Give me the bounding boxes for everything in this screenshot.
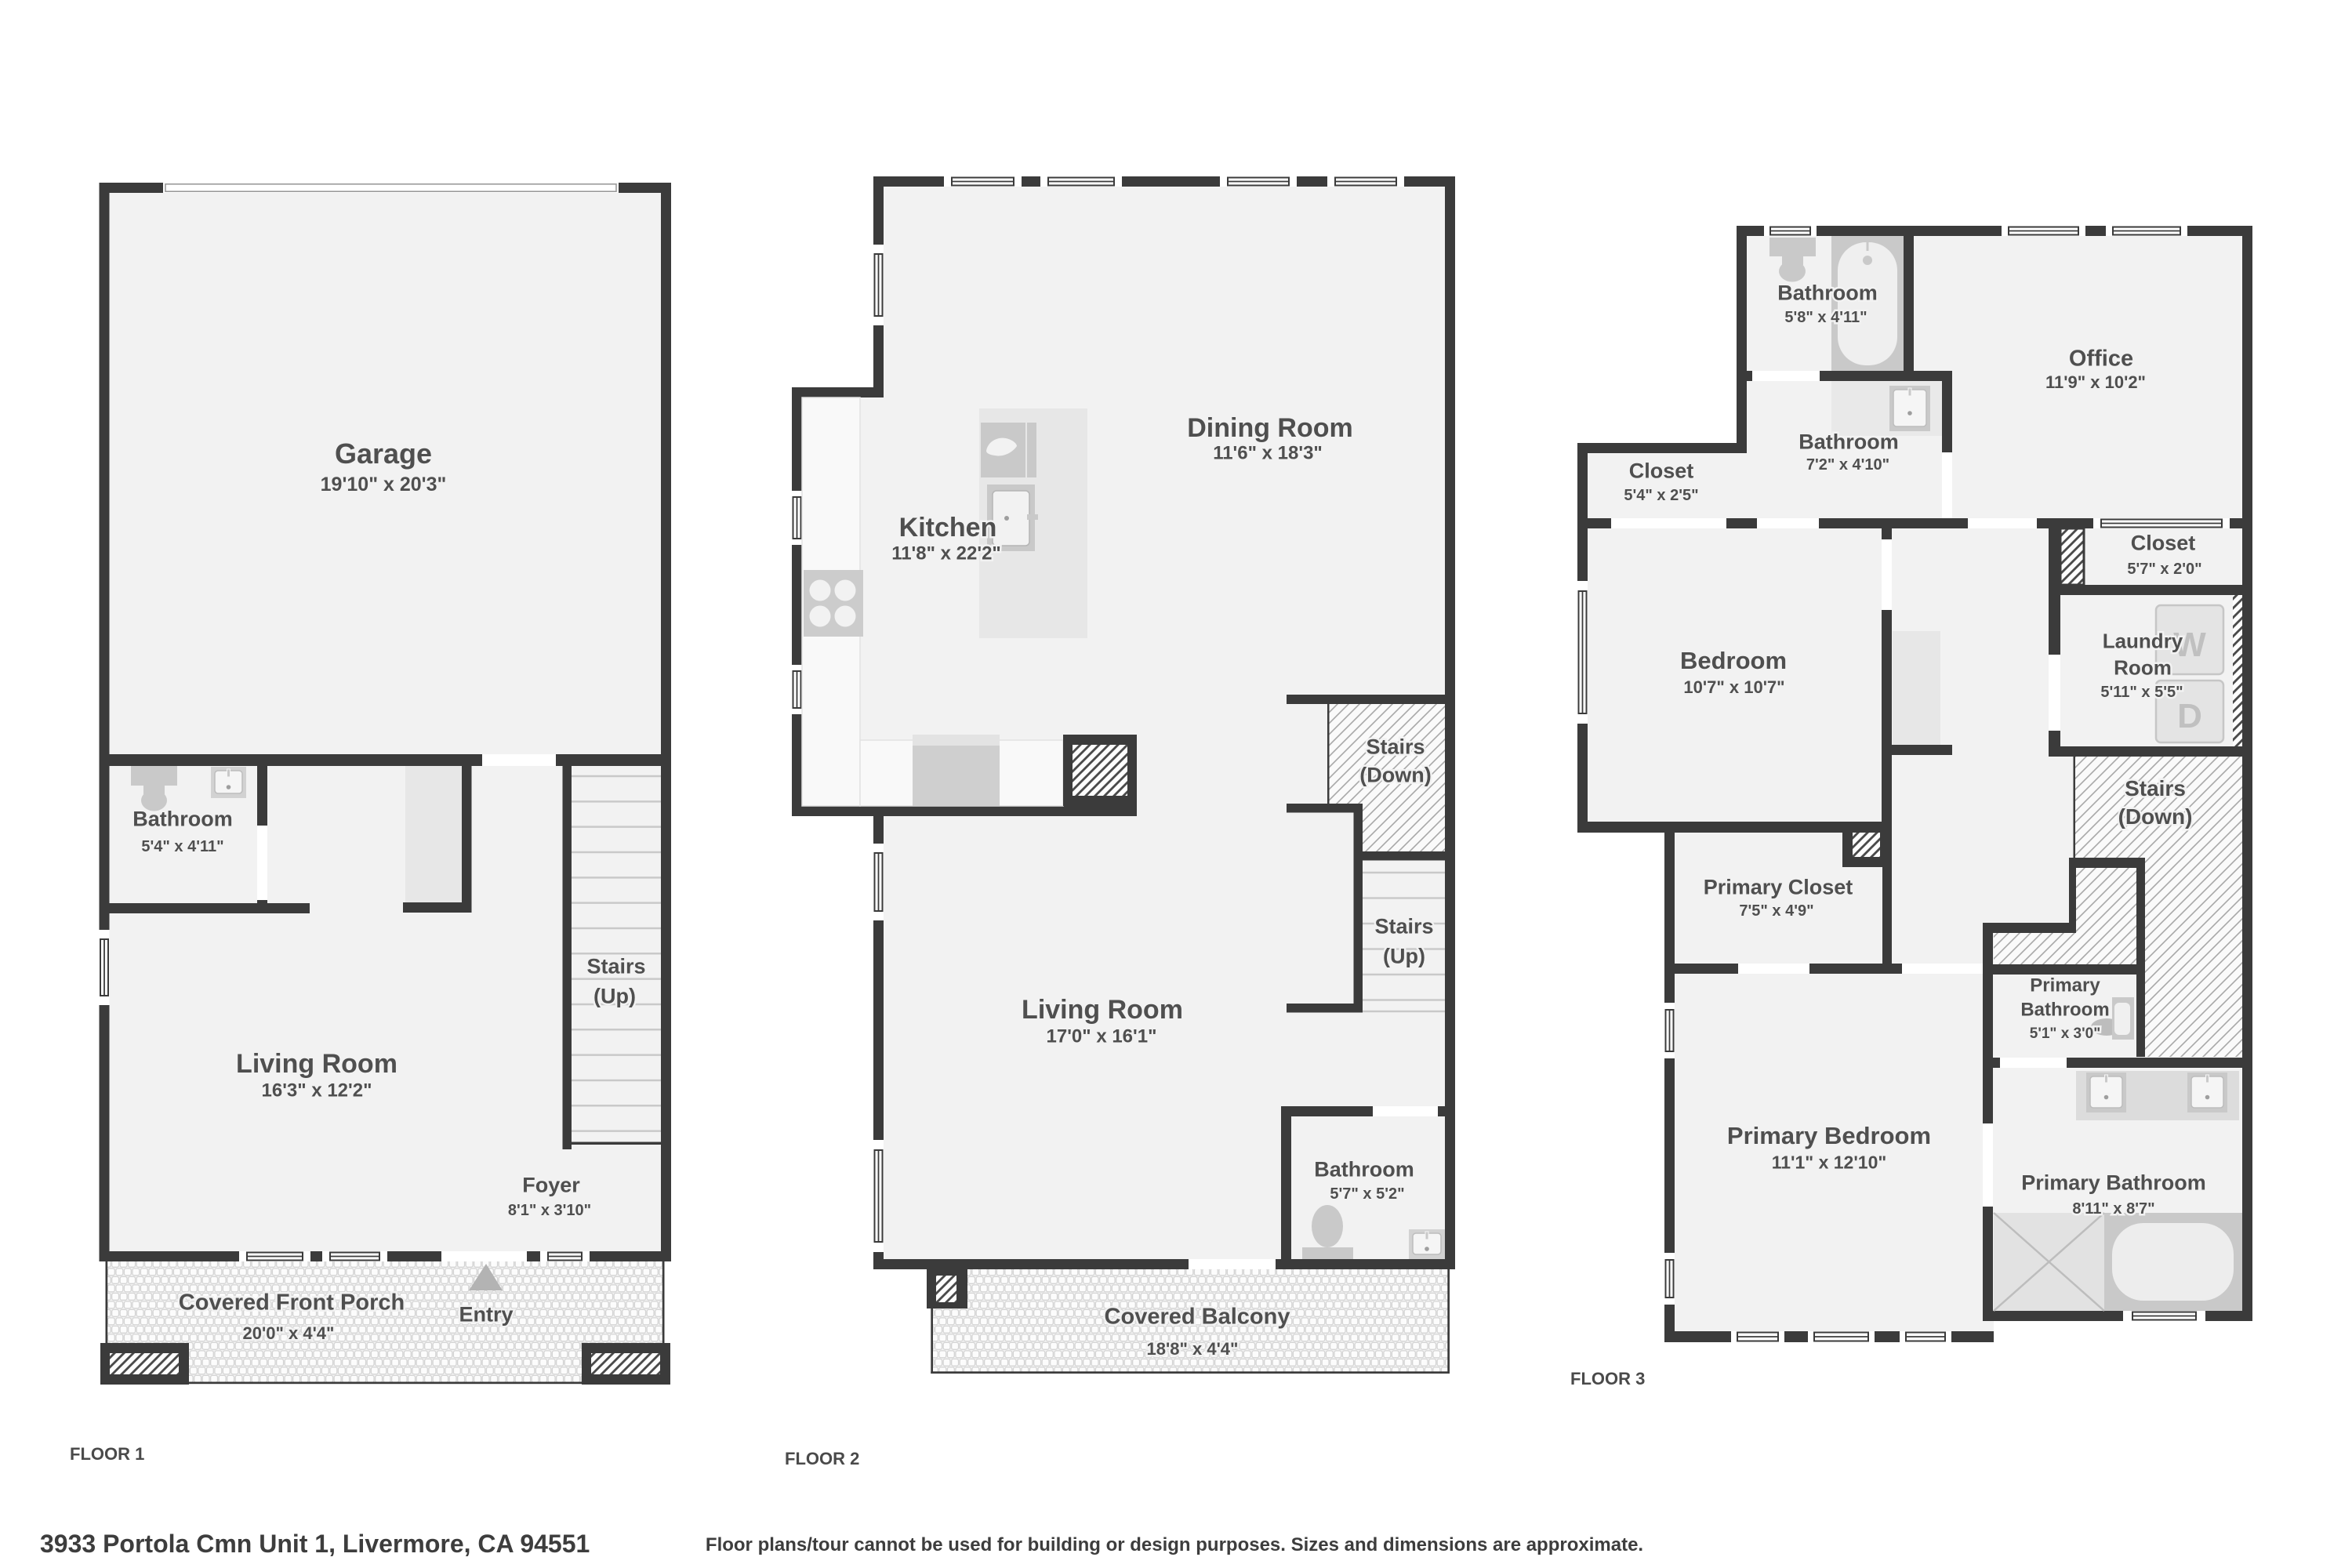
svg-text:5'11" x 5'5": 5'11" x 5'5" xyxy=(2100,684,2183,701)
svg-text:Bathroom: Bathroom xyxy=(2020,1000,2109,1021)
svg-text:5'7" x 2'0": 5'7" x 2'0" xyxy=(2127,561,2201,578)
svg-text:(Down): (Down) xyxy=(2118,804,2193,829)
svg-text:Laundry: Laundry xyxy=(2103,629,2183,652)
svg-text:Closet: Closet xyxy=(1629,459,1694,483)
svg-text:Covered Front Porch: Covered Front Porch xyxy=(179,1290,405,1315)
svg-text:7'5" x 4'9": 7'5" x 4'9" xyxy=(1739,902,1813,920)
svg-text:5'4" x 4'11": 5'4" x 4'11" xyxy=(141,838,223,855)
svg-text:19'10" x 20'3": 19'10" x 20'3" xyxy=(321,474,447,495)
svg-text:20'0" x 4'4": 20'0" x 4'4" xyxy=(243,1323,335,1343)
svg-text:7'2" x 4'10": 7'2" x 4'10" xyxy=(1806,456,1889,474)
svg-text:11'9" x 10'2": 11'9" x 10'2" xyxy=(2045,372,2146,392)
svg-text:Primary: Primary xyxy=(2030,975,2100,996)
svg-text:Stairs: Stairs xyxy=(1366,735,1425,759)
svg-text:Stairs: Stairs xyxy=(1374,915,1433,938)
svg-text:11'8" x 22'2": 11'8" x 22'2" xyxy=(891,543,1001,564)
svg-text:17'0" x 16'1": 17'0" x 16'1" xyxy=(1047,1026,1157,1047)
svg-text:Covered Balcony: Covered Balcony xyxy=(1105,1304,1290,1329)
svg-text:Foyer: Foyer xyxy=(522,1174,580,1197)
svg-text:5'7" x 5'2": 5'7" x 5'2" xyxy=(1330,1185,1404,1203)
svg-text:5'8" x 4'11": 5'8" x 4'11" xyxy=(1784,309,1867,326)
svg-text:Bathroom: Bathroom xyxy=(1777,281,1878,305)
svg-text:(Up): (Up) xyxy=(593,985,636,1008)
svg-text:Living Room: Living Room xyxy=(1022,995,1183,1025)
svg-text:Bedroom: Bedroom xyxy=(1680,647,1787,674)
svg-text:(Down): (Down) xyxy=(1359,764,1431,787)
svg-text:Primary Bathroom: Primary Bathroom xyxy=(2021,1171,2206,1195)
svg-text:16'3" x 12'2": 16'3" x 12'2" xyxy=(262,1080,372,1102)
svg-text:FLOOR 3: FLOOR 3 xyxy=(1570,1369,1645,1388)
svg-text:FLOOR 2: FLOOR 2 xyxy=(785,1449,859,1468)
svg-text:Stairs: Stairs xyxy=(586,955,645,978)
svg-text:Dining Room: Dining Room xyxy=(1187,413,1353,443)
svg-text:Primary Bedroom: Primary Bedroom xyxy=(1727,1122,1931,1149)
svg-text:5'4" x 2'5": 5'4" x 2'5" xyxy=(1624,487,1698,504)
svg-text:8'11" x 8'7": 8'11" x 8'7" xyxy=(2072,1200,2154,1218)
svg-text:11'6" x 18'3": 11'6" x 18'3" xyxy=(1213,443,1323,464)
svg-text:Floor plans/tour cannot be use: Floor plans/tour cannot be used for buil… xyxy=(706,1534,1643,1555)
svg-text:3933 Portola Cmn Unit 1, Liver: 3933 Portola Cmn Unit 1, Livermore, CA 9… xyxy=(40,1530,590,1558)
svg-text:Closet: Closet xyxy=(2131,532,2196,555)
svg-text:8'1" x 3'10": 8'1" x 3'10" xyxy=(508,1202,591,1219)
svg-text:Living Room: Living Room xyxy=(236,1049,397,1079)
svg-text:Room: Room xyxy=(2114,655,2172,679)
svg-text:Primary Closet: Primary Closet xyxy=(1704,876,1853,899)
svg-text:Office: Office xyxy=(2069,346,2133,371)
svg-text:Bathroom: Bathroom xyxy=(1798,430,1899,454)
svg-text:18'8" x 4'4": 18'8" x 4'4" xyxy=(1147,1339,1239,1359)
svg-text:5'1" x 3'0": 5'1" x 3'0" xyxy=(2030,1025,2100,1042)
svg-text:Stairs: Stairs xyxy=(2125,776,2186,800)
svg-text:Garage: Garage xyxy=(335,437,432,470)
svg-text:(Up): (Up) xyxy=(1383,945,1425,968)
svg-text:Kitchen: Kitchen xyxy=(899,513,997,543)
svg-text:D: D xyxy=(2177,697,2202,735)
svg-text:11'1" x 12'10": 11'1" x 12'10" xyxy=(1772,1152,1887,1172)
svg-text:Bathroom: Bathroom xyxy=(1314,1158,1414,1181)
svg-text:10'7" x 10'7": 10'7" x 10'7" xyxy=(1683,677,1784,697)
svg-text:Bathroom: Bathroom xyxy=(132,808,233,831)
svg-text:FLOOR 1: FLOOR 1 xyxy=(70,1444,144,1464)
svg-text:Entry: Entry xyxy=(459,1303,513,1327)
